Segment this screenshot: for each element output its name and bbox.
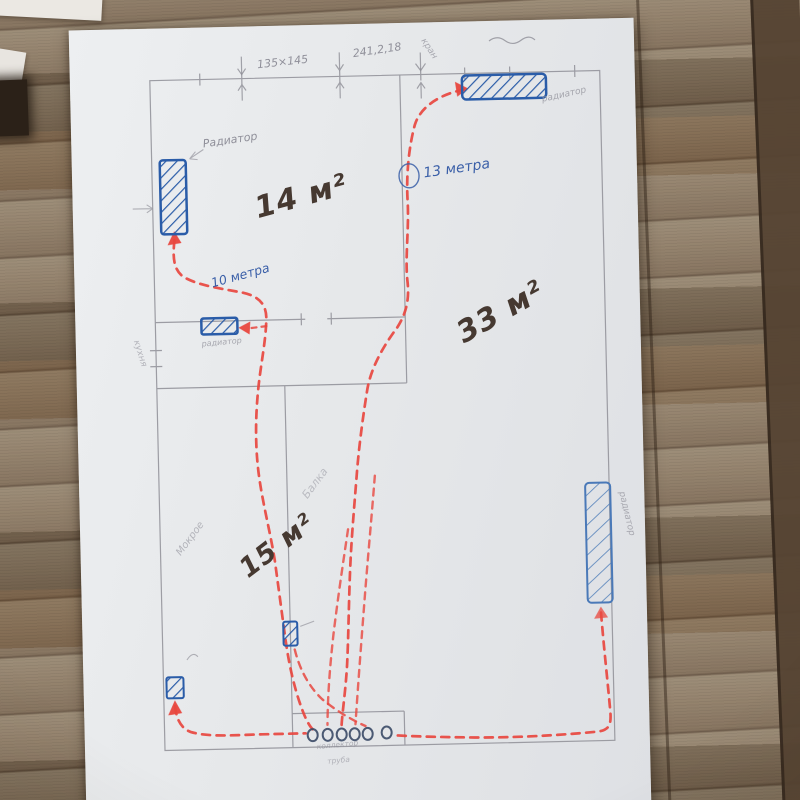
pipe-branch-mid-radiator [247,326,266,328]
radiator-right [585,482,613,603]
radiator-label-right: радиатор [616,490,636,538]
radiator-bottom-left [166,677,183,698]
floor-plan-drawing: 14 м² 33 м² 15 м² 13 метра 10 метра 135×… [69,18,653,800]
outlet-circle [308,729,318,741]
pipe-route-right-radiator [392,612,611,739]
tap-label: кран [418,37,439,61]
dimension-note-2: 241,2,18 [352,40,402,60]
outer-wall [150,70,615,750]
radiator-top-right [462,74,547,100]
interior-wall-vertical [400,75,407,383]
pipe-bundle-line-2 [323,529,352,725]
interior-wall-a [155,317,405,323]
radiator-interior [283,621,298,645]
pipe-bundle-line-4 [350,476,381,725]
shadow-object-left-edge [0,79,29,136]
radiators [153,72,615,698]
interior-wall-c [285,386,293,748]
arrow-left-side [133,205,153,213]
pipe-routes [161,87,611,745]
pipe-route-left-radiator [173,237,312,732]
pipe-arrowheads [154,79,610,716]
photo-of-floor-plan: 14 м² 33 м² 15 м² 13 метра 10 метра 135×… [0,0,800,800]
pencil-scribbles [131,147,315,661]
outlet-circle [363,728,373,740]
outlet-circle [323,729,333,741]
area-label-14: 14 м² [251,167,352,226]
wet-zone-label: Мокрое [174,520,206,558]
dark-plank-strip [747,0,800,800]
collector-label: коллектор [316,738,358,751]
radiator-mid-left [201,318,237,335]
area-label-33: 33 м² [451,274,551,351]
pipe-length-13: 13 метра [422,156,491,182]
outlet-circle [382,726,392,738]
pipe-label: труба [327,755,351,766]
plan-texts: 14 м² 33 м² 15 м² 13 метра 10 метра 135×… [124,32,642,770]
arrowhead-right-radiator [594,606,608,618]
beam-label: Балка [299,465,330,501]
kitchen-label: кухня [131,339,149,369]
radiator-label-main: Радиатор [202,130,258,151]
sketch-paper: 14 м² 33 м² 15 м² 13 метра 10 метра 135×… [69,18,653,800]
walls [144,64,615,750]
arrow-to-left-radiator [189,149,203,159]
pipe-length-10: 10 метра [209,260,271,290]
arrowhead-bottom-left [168,700,182,715]
arrowhead-mid-radiator [238,321,250,334]
radiator-left [160,160,188,235]
dimension-note-1: 135×145 [256,53,308,72]
radiator-label-mid: радиатор [200,336,242,349]
scribble-above-radiator [489,37,535,44]
pipe-route-bottom-left [175,703,306,736]
